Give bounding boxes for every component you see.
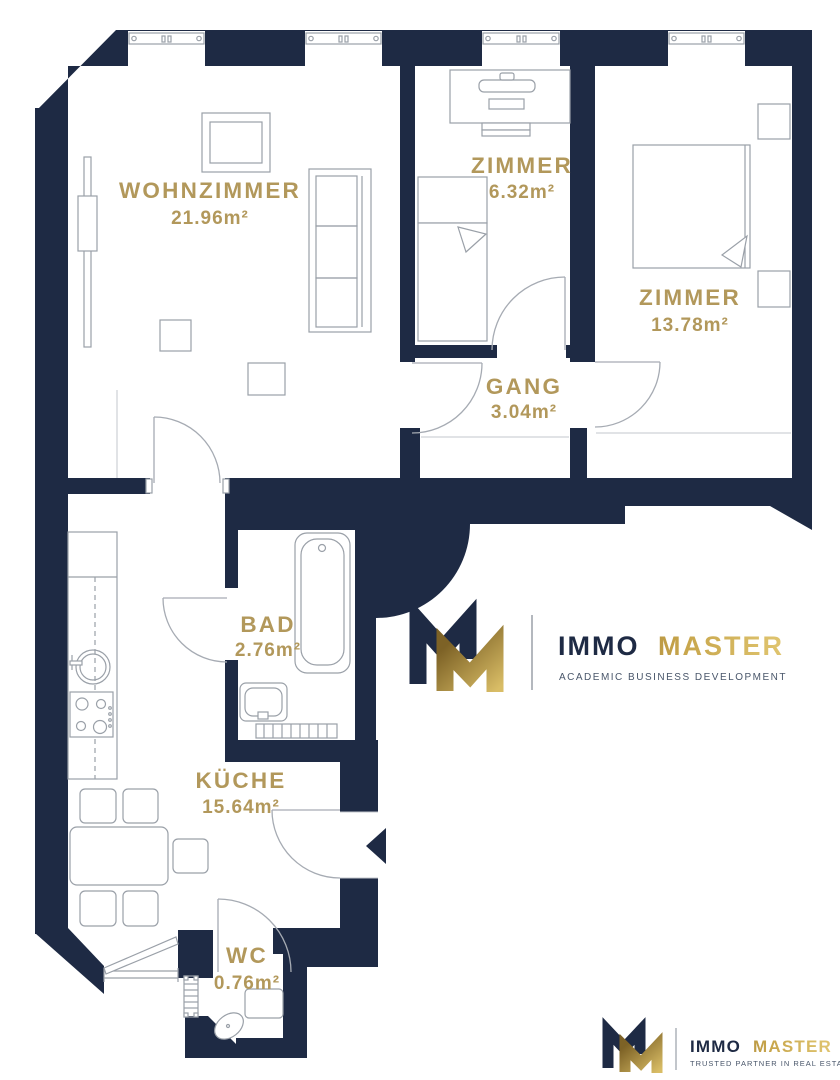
wall-zimmer-zimmer	[570, 66, 595, 362]
room-name: ZIMMER	[471, 153, 573, 178]
desk-shelf	[482, 130, 530, 136]
wall-wohnzimmer-gang-stub	[400, 428, 420, 478]
door-zimmer-gross	[595, 362, 660, 427]
furniture-zimmer-klein	[418, 70, 570, 341]
wc-radiator	[184, 976, 198, 1017]
towel-radiator	[256, 724, 337, 738]
logo-tagline: TRUSTED PARTNER IN REAL ESTATE	[690, 1059, 840, 1068]
desk-shelf	[482, 123, 530, 130]
tv-unit	[78, 196, 97, 251]
room-area: 13.78m²	[651, 315, 729, 336]
bad-sink-tap	[258, 712, 268, 719]
logo-wordmark: IMMO MASTER	[558, 631, 784, 661]
wall-wohnzimmer-zimmer	[400, 66, 415, 362]
room-label-wohnzimmer: WOHNZIMMER 21.96m²	[119, 178, 301, 229]
sink-tap-base	[70, 661, 82, 665]
wall-kueche-right-top	[340, 756, 378, 812]
stove	[70, 692, 113, 737]
entrance-direction-marker	[366, 828, 386, 864]
room-label-wc: WC 0.76m²	[214, 943, 280, 994]
furniture-kueche	[68, 532, 208, 926]
logo-wordmark: IMMO MASTER	[690, 1037, 832, 1056]
room-area: 6.32m²	[489, 182, 555, 203]
wall-zimmer2-stub	[570, 428, 587, 478]
room-area: 15.64m²	[202, 797, 280, 818]
keyboard	[489, 99, 524, 109]
window	[668, 31, 745, 66]
furniture-zimmer-gross	[633, 104, 790, 307]
room-name: GANG	[486, 374, 562, 399]
wall-band-right-b	[625, 478, 812, 506]
room-label-bad: BAD 2.76m²	[235, 612, 301, 661]
nightstand	[758, 104, 790, 139]
wall-kueche-wc-corner	[178, 930, 213, 978]
chair	[123, 789, 158, 823]
room-area: 21.96m²	[171, 208, 249, 229]
furniture-wohnzimmer	[78, 113, 371, 395]
wall-gang-top	[415, 345, 497, 358]
room-area: 3.04m²	[491, 402, 557, 423]
wall-bad-left-top	[225, 530, 238, 588]
room-name: WC	[226, 943, 268, 968]
room-name: BAD	[240, 612, 295, 637]
chair	[80, 891, 116, 926]
wall-kueche-right-bottom	[340, 878, 378, 932]
wall-chamfer-bottom-left	[35, 928, 104, 994]
door-zimmer-klein	[492, 277, 565, 350]
wall-band-left	[35, 478, 150, 494]
bathtub	[295, 533, 350, 673]
logo-footer: IMMO MASTER TRUSTED PARTNER IN REAL ESTA…	[608, 1028, 840, 1073]
room-name: ZIMMER	[639, 285, 741, 310]
nightstand	[758, 271, 790, 307]
room-area: 2.76m²	[235, 640, 301, 661]
logo-center: IMMO MASTER ACADEMIC BUSINESS DEVELOPMEN…	[418, 615, 787, 692]
sofa	[309, 169, 371, 332]
room-label-zimmer-gross: ZIMMER 13.78m²	[639, 285, 741, 336]
window	[482, 31, 560, 66]
room-label-gang: GANG 3.04m²	[486, 374, 562, 423]
door-bad	[163, 598, 227, 662]
room-area: 0.76m²	[214, 973, 280, 994]
window	[305, 31, 382, 66]
chair	[80, 789, 116, 823]
wall-chamfer-bottom-right	[770, 506, 812, 530]
door-wohnzimmer-gang	[412, 363, 482, 433]
wall-left	[35, 108, 68, 934]
wall-right	[792, 30, 812, 510]
side-table	[160, 320, 191, 351]
chair	[123, 891, 158, 926]
side-table	[248, 363, 285, 395]
wardrobe	[418, 177, 487, 223]
logo-tagline: ACADEMIC BUSINESS DEVELOPMENT	[559, 672, 787, 683]
doors	[154, 277, 660, 972]
monitor	[479, 80, 535, 92]
tv-board	[84, 157, 91, 347]
door-wohnzimmer-vestibule	[154, 417, 220, 483]
room-label-kueche: KÜCHE 15.64m²	[195, 768, 286, 818]
monitor-cam	[500, 73, 514, 80]
floor-plan: WOHNZIMMER 21.96m² ZIMMER 6.32m² ZIMMER …	[0, 0, 840, 1080]
wall-band-right-a	[570, 478, 625, 524]
dining-table	[70, 827, 168, 885]
door-entrance	[272, 810, 340, 878]
room-name: KÜCHE	[195, 768, 286, 793]
side-table	[173, 839, 208, 873]
wall-bad-left-bottom	[225, 660, 238, 742]
room-name: WOHNZIMMER	[119, 178, 301, 203]
wall-wc-top-right	[273, 928, 307, 954]
window	[128, 31, 205, 66]
kitchen-counter	[68, 532, 117, 779]
window-kueche	[104, 937, 178, 982]
